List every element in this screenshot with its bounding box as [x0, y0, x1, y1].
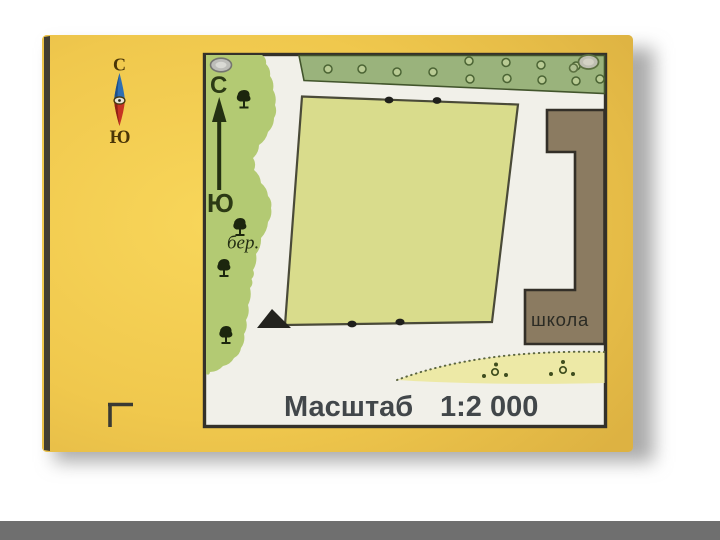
- svg-text:Масштаб: Масштаб: [284, 391, 413, 423]
- svg-text:С: С: [113, 55, 126, 75]
- svg-text:бер.: бер.: [227, 233, 259, 254]
- svg-text:школа: школа: [531, 309, 589, 330]
- svg-text:1:2 000: 1:2 000: [440, 391, 538, 423]
- svg-text:С: С: [210, 72, 227, 99]
- svg-text:Ю: Ю: [207, 188, 234, 218]
- svg-text:Ю: Ю: [110, 128, 131, 148]
